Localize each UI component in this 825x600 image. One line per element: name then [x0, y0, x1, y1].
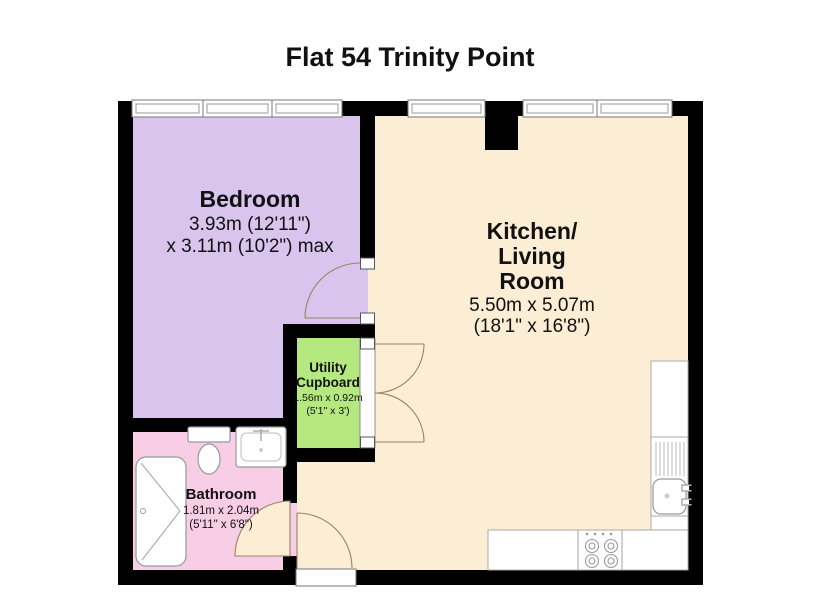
burner-inner: [608, 543, 614, 549]
jamb: [361, 338, 375, 349]
window-pane: [132, 100, 203, 117]
burner-inner: [589, 543, 595, 549]
bedroom-label: Bedroom: [200, 186, 301, 212]
bedroom-dimensions-line2: x 3.11m (10'2") max: [166, 236, 334, 257]
burner-inner: [589, 558, 595, 564]
utility-label-line2: Cupboard: [296, 375, 360, 390]
floor-plan-page: Flat 54 Trinity Point: [0, 0, 825, 600]
bathroom-dimensions-metric: 1.81m x 2.04m: [183, 505, 259, 517]
basin-drain: [259, 448, 263, 452]
sink-basin: [653, 479, 686, 514]
window-pane: [597, 100, 672, 117]
wall-utility-bottom: [283, 448, 375, 462]
window-pane: [408, 100, 485, 117]
bedroom-window-icon: [132, 100, 342, 117]
wall-pier: [485, 101, 518, 150]
hob-knob: [594, 533, 597, 536]
entrance-threshold: [296, 569, 356, 586]
window-pane: [203, 100, 272, 117]
bedroom-dimensions-line1: 3.93m (12'11"): [189, 214, 311, 235]
wall-left: [118, 101, 133, 585]
basin-icon: [236, 427, 286, 467]
sink-tap-tip: [689, 500, 693, 504]
wall-bathroom-right-upper: [283, 324, 297, 503]
wall-bathroom-right-stub: [283, 556, 297, 570]
utility-dimensions-imperial: (5'1" x 3'): [306, 405, 349, 417]
jamb: [361, 437, 375, 448]
utility-label-line1: Utility: [309, 360, 347, 375]
window-pane: [523, 100, 597, 117]
kitchen-living-dimensions-metric: 5.50m x 5.07m: [469, 295, 595, 316]
bathroom-label: Bathroom: [186, 486, 257, 503]
kitchen-living-label-line1: Kitchen/: [487, 218, 578, 244]
hob-knob: [610, 533, 613, 536]
bathroom-dimensions-imperial: (5'11" x 6'8"): [189, 519, 253, 531]
kitchen-living-label-line3: Room: [499, 268, 564, 294]
hob-knob: [602, 533, 605, 536]
kitchen-living-label-line2: Living: [498, 243, 566, 269]
utility-dimensions-metric: 1.56m x 0.92m: [293, 392, 363, 404]
kitchen-window-right-icon: [523, 100, 672, 117]
kitchen-living-dimensions-imperial: (18'1" x 16'8"): [474, 316, 591, 337]
floor-plan-svg: Flat 54 Trinity Point: [0, 0, 825, 600]
jamb: [361, 258, 375, 269]
page-title: Flat 54 Trinity Point: [285, 42, 534, 72]
hob-knob: [586, 533, 589, 536]
wall-bottom: [118, 570, 703, 585]
window-pane: [272, 100, 342, 117]
shower-tray: [136, 457, 186, 566]
sink-drain: [665, 494, 670, 499]
kitchen-window-left-icon: [408, 100, 485, 117]
toilet-bowl: [198, 444, 220, 474]
sink-tap-tip: [689, 486, 693, 490]
wall-bedroom-kitchen-upper: [360, 116, 375, 258]
wall-right: [688, 101, 703, 585]
burner-inner: [608, 558, 614, 564]
jamb: [361, 313, 375, 324]
shower-icon: [136, 457, 186, 566]
toilet-cistern: [188, 427, 230, 442]
